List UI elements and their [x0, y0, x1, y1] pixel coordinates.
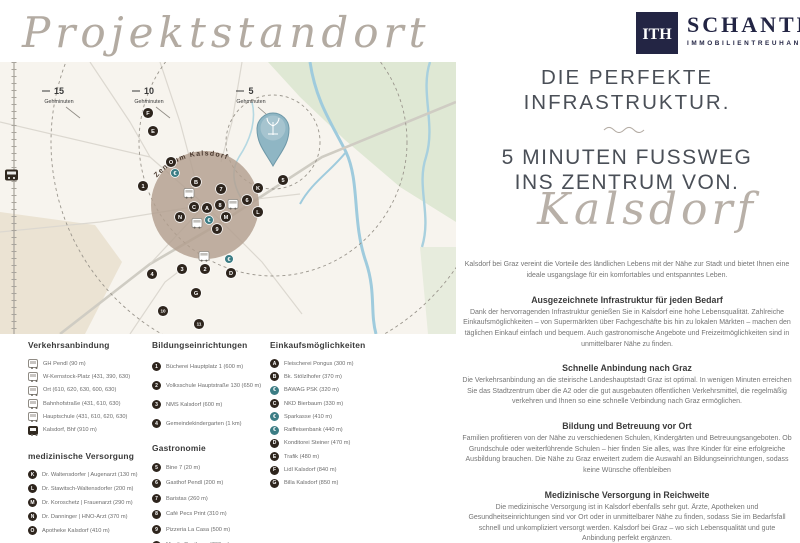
- map-letter-badge: M: [28, 498, 37, 507]
- legend-item: Hauptschule (431, 610, 620, 630): [28, 410, 146, 423]
- legend-item-label: W-Kernstock-Platz (431, 390, 630): [43, 374, 130, 380]
- map-letter-badge: L: [28, 484, 37, 493]
- legend-item: GH Pendl (90 m): [28, 357, 146, 370]
- legend-item-label: Lidl Kalsdorf (840 m): [284, 467, 336, 473]
- legend-item: Kalsdorf, Bhf (910 m): [28, 423, 146, 436]
- legend-item: B Bk. Stölzlhofer (370 m): [270, 370, 440, 383]
- map-marker-label: 9: [215, 227, 218, 233]
- legend-item-label: BAWAG PSK (320 m): [284, 387, 339, 393]
- text-section: Schnelle Anbindung nach Graz Die Verkehr…: [462, 363, 792, 408]
- legend-list-einkauf: A Fleischerei Pongus (300 m) B Bk. Stölz…: [270, 357, 440, 490]
- section-title: Medizinische Versorgung in Reichweite: [462, 490, 792, 500]
- map-letter-badge: €: [270, 412, 279, 421]
- logo-ith-icon: ITH: [636, 12, 678, 54]
- text-section: Medizinische Versorgung in Reichweite Di…: [462, 490, 792, 543]
- logo-name: SCHANTL: [687, 12, 800, 38]
- legend-item: E Trafik (480 m): [270, 450, 440, 463]
- map-marker-label: D: [229, 271, 233, 277]
- text-section: Bildung und Betreuung vor Ort Familien p…: [462, 421, 792, 477]
- section-body: Die medizinische Versorgung ist in Kalsd…: [462, 503, 792, 543]
- map-letter-badge: C: [270, 399, 279, 408]
- script-kalsdorf: Kalsdorf: [502, 186, 792, 234]
- legend-item-label: Bk. Stölzlhofer (370 m): [284, 374, 342, 380]
- map-canvas: 15 Gehminuten 10 Gehminuten 5 Gehminuten: [0, 62, 456, 334]
- headline-1-line-1: DIE PERFEKTE: [462, 66, 792, 91]
- wavy-divider: [602, 125, 652, 133]
- map-marker-label: 2: [203, 267, 206, 273]
- bus-icon: [28, 426, 38, 435]
- section-body: Die Verkehrsanbindung an die steirische …: [462, 376, 792, 408]
- legend-item-label: Sparkasse (410 m): [284, 414, 332, 420]
- map-marker-label: F: [146, 111, 150, 117]
- legend-title-medizin: medizinische Versorgung: [28, 451, 146, 461]
- legend-item: € Raiffeisenbank (440 m): [270, 423, 440, 436]
- map-marker-label: M: [224, 215, 229, 221]
- svg-text:5: 5: [248, 86, 253, 96]
- legend-item: L Dr. Stawitsch-Waltensdorfer (200 m): [28, 482, 146, 496]
- legend-list-bildung: 1 Bücherei Hauptplatz 1 (600 m) 2 Volkss…: [152, 357, 266, 433]
- legend-item: G Billa Kalsdorf (850 m): [270, 477, 440, 490]
- page-title: Projektstandort: [22, 8, 342, 57]
- map-letter-badge: E: [270, 452, 279, 461]
- map-marker-label: 11: [197, 322, 202, 327]
- map-letter-badge: F: [270, 466, 279, 475]
- map-marker-label: B: [194, 180, 198, 186]
- svg-text:10: 10: [144, 86, 154, 96]
- legend-item: 1 Bücherei Hauptplatz 1 (600 m): [152, 357, 266, 376]
- map-marker-label: 1: [141, 184, 144, 190]
- map-marker-label: G: [194, 291, 198, 297]
- logo-text: SCHANTL IMMOBILIENTREUHAND: [687, 12, 800, 47]
- brochure-page: Projektstandort ITH SCHANTL IMMOBILIENTR…: [0, 0, 800, 543]
- map-marker-label: A: [205, 206, 209, 212]
- legend-item-label: Hauptschule (431, 610, 620, 630): [43, 414, 127, 420]
- legend-column-2: Bildungseinrichtungen 1 Bücherei Hauptpl…: [152, 340, 266, 543]
- legend-title-verkehr: Verkehrsanbindung: [28, 340, 146, 350]
- legend-item-label: Dr. Waltensdorfer | Augenarzt (130 m): [42, 472, 137, 478]
- map-letter-badge: B: [270, 372, 279, 381]
- legend-item: Bahnhofstraße (431, 610, 630): [28, 397, 146, 410]
- legend-item-label: Raiffeisenbank (440 m): [284, 427, 343, 433]
- legend-column-1: Verkehrsanbindung GH Pendl (90 m) W-Kern…: [28, 340, 146, 538]
- legend-list-verkehr: GH Pendl (90 m) W-Kernstock-Platz (431, …: [28, 357, 146, 437]
- bus-icon: [28, 399, 38, 408]
- legend-item-label: Trafik (480 m): [284, 454, 319, 460]
- text-column: DIE PERFEKTE INFRASTRUKTUR. 5 MINUTEN FU…: [462, 66, 792, 543]
- legend-list-gastronomie: 5 Bine 7 (20 m) 6 Gasthof Pendl (200 m) …: [152, 460, 266, 543]
- map-number-badge: 4: [152, 419, 161, 428]
- map-marker-label: 6: [245, 198, 248, 204]
- section-title: Schnelle Anbindung nach Graz: [462, 363, 792, 373]
- map-letter-badge: K: [28, 470, 37, 479]
- map-number-badge: 3: [152, 400, 161, 409]
- legend-item-label: Dr. Danninger | HNO-Arzt (370 m): [42, 514, 128, 520]
- legend-item: A Fleischerei Pongus (300 m): [270, 357, 440, 370]
- legend-item-label: Fleischerei Pongus (300 m): [284, 361, 354, 367]
- map-marker-label: N: [178, 215, 182, 221]
- legend-item-label: NMS Kalsdorf (600 m): [166, 402, 222, 408]
- bus-icon: [28, 372, 38, 381]
- legend-item-label: Billa Kalsdorf (850 m): [284, 480, 338, 486]
- section-body: Familien profitieren von der Nähe zu ver…: [462, 434, 792, 477]
- map-letter-badge: D: [270, 439, 279, 448]
- legend-item-label: Apotheke Kalsdorf (410 m): [42, 528, 110, 534]
- legend-item-label: Gasthof Pendl (200 m): [166, 480, 223, 486]
- legend-item: 3 NMS Kalsdorf (600 m): [152, 395, 266, 414]
- legend-item-label: Café Pecs Print (310 m): [166, 511, 227, 517]
- legend-column-3: Einkaufsmöglichkeiten A Fleischerei Pong…: [270, 340, 440, 490]
- legend-item: F Lidl Kalsdorf (840 m): [270, 463, 440, 476]
- map-marker-label: O: [169, 160, 174, 166]
- map-letter-badge: €: [270, 426, 279, 435]
- legend-item: O Apotheke Kalsdorf (410 m): [28, 524, 146, 538]
- legend-item-label: Bahnhofstraße (431, 610, 630): [43, 401, 120, 407]
- map-letter-badge: O: [28, 526, 37, 535]
- legend-item: C NKD Bierbaum (330 m): [270, 397, 440, 410]
- map-number-badge: 9: [152, 525, 161, 534]
- intro-paragraph: Kalsdorf bei Graz vereint die Vorteile d…: [462, 260, 792, 282]
- map-number-badge: 2: [152, 381, 161, 390]
- headline-1-line-2: INFRASTRUKTUR.: [462, 91, 792, 116]
- map-marker-label: K: [256, 186, 260, 192]
- bus-icon: [28, 386, 38, 395]
- svg-text:Gehminuten: Gehminuten: [134, 99, 163, 105]
- legend-item-label: GH Pendl (90 m): [43, 361, 86, 367]
- map-letter-badge: G: [270, 479, 279, 488]
- legend-title-gastronomie: Gastronomie: [152, 443, 266, 453]
- map-letter-badge: N: [28, 512, 37, 521]
- bus-icon: [28, 412, 38, 421]
- map-letter-badge: €: [270, 386, 279, 395]
- svg-text:Gehminuten: Gehminuten: [236, 99, 265, 105]
- legend-item: W-Kernstock-Platz (431, 390, 630): [28, 370, 146, 383]
- legend-item: 6 Gasthof Pendl (200 m): [152, 476, 266, 492]
- sections: Ausgezeichnete Infrastruktur für jeden B…: [462, 295, 792, 543]
- map-marker-label: C: [192, 205, 196, 211]
- map-number-badge: 7: [152, 494, 161, 503]
- legend-list-medizin: K Dr. Waltensdorfer | Augenarzt (130 m) …: [28, 468, 146, 538]
- map-number-badge: 6: [152, 479, 161, 488]
- headline-2-line-1: 5 MINUTEN FUSSWEG: [462, 145, 792, 170]
- section-title: Ausgezeichnete Infrastruktur für jeden B…: [462, 295, 792, 305]
- bus-icon: [28, 359, 38, 368]
- legend-item-label: Volksschule Hauptstraße 130 (650 m): [166, 383, 261, 389]
- legend-item-label: Bine 7 (20 m): [166, 465, 200, 471]
- text-section: Ausgezeichnete Infrastruktur für jeden B…: [462, 295, 792, 351]
- legend-title-einkauf: Einkaufsmöglichkeiten: [270, 340, 440, 350]
- svg-text:Gehminuten: Gehminuten: [44, 99, 73, 105]
- map-number-badge: 5: [152, 463, 161, 472]
- legend-item-label: Pizzeria La Casa (500 m): [166, 527, 230, 533]
- map-marker-label: 8: [218, 203, 221, 209]
- map-marker-label: 7: [219, 187, 222, 193]
- legend-item: 8 Café Pecs Print (310 m): [152, 507, 266, 523]
- legend-item-label: Dr. Koroschetz | Frauenarzt (290 m): [42, 500, 133, 506]
- legend-item-label: Baristas (260 m): [166, 496, 208, 502]
- legend-item: 9 Pizzeria La Casa (500 m): [152, 522, 266, 538]
- legend-item-label: Gemeindekindergarten (1 km): [166, 421, 242, 427]
- map-marker-label: 5: [281, 178, 284, 184]
- legend-item: 4 Gemeindekindergarten (1 km): [152, 414, 266, 433]
- section-body: Dank der hervorragenden Infrastruktur ge…: [462, 308, 792, 351]
- legend-item: M Dr. Koroschetz | Frauenarzt (290 m): [28, 496, 146, 510]
- train-station-icon: [5, 170, 18, 181]
- map-marker-label: 3: [180, 267, 183, 273]
- svg-text:15: 15: [54, 86, 64, 96]
- legend-item-label: Ort (610, 620, 630, 600, 630): [43, 387, 116, 393]
- legend-item: 7 Baristas (260 m): [152, 491, 266, 507]
- legend-item: 5 Bine 7 (20 m): [152, 460, 266, 476]
- section-title: Bildung und Betreuung vor Ort: [462, 421, 792, 431]
- legend-item-label: Dr. Stawitsch-Waltensdorfer (200 m): [42, 486, 133, 492]
- map-marker-label: E: [151, 129, 155, 135]
- logo-subtitle: IMMOBILIENTREUHAND: [687, 40, 800, 47]
- legend-title-bildung: Bildungseinrichtungen: [152, 340, 266, 350]
- legend-item: N Dr. Danninger | HNO-Arzt (370 m): [28, 510, 146, 524]
- map-number-badge: 8: [152, 510, 161, 519]
- legend-item: € Sparkasse (410 m): [270, 410, 440, 423]
- legend-item: 10 Moni's Gasthaus (760 m): [152, 538, 266, 543]
- company-logo: ITH SCHANTL IMMOBILIENTREUHAND: [636, 12, 800, 54]
- legend-item-label: Konditorei Steiner (470 m): [284, 440, 350, 446]
- legend-item-label: Bücherei Hauptplatz 1 (600 m): [166, 364, 243, 370]
- map-marker-label: 10: [160, 309, 166, 314]
- map-marker-label: L: [256, 210, 260, 216]
- legend-item: K Dr. Waltensdorfer | Augenarzt (130 m): [28, 468, 146, 482]
- legend-item: Ort (610, 620, 630, 600, 630): [28, 384, 146, 397]
- legend-item: D Konditorei Steiner (470 m): [270, 437, 440, 450]
- map-letter-badge: A: [270, 359, 279, 368]
- map-number-badge: 1: [152, 362, 161, 371]
- legend-item-label: Kalsdorf, Bhf (910 m): [43, 427, 97, 433]
- headline-1: DIE PERFEKTE INFRASTRUKTUR.: [462, 66, 792, 115]
- legend-item: 2 Volksschule Hauptstraße 130 (650 m): [152, 376, 266, 395]
- legend-item-label: NKD Bierbaum (330 m): [284, 401, 343, 407]
- location-map: 15 Gehminuten 10 Gehminuten 5 Gehminuten: [0, 62, 456, 334]
- legend-item: € BAWAG PSK (320 m): [270, 384, 440, 397]
